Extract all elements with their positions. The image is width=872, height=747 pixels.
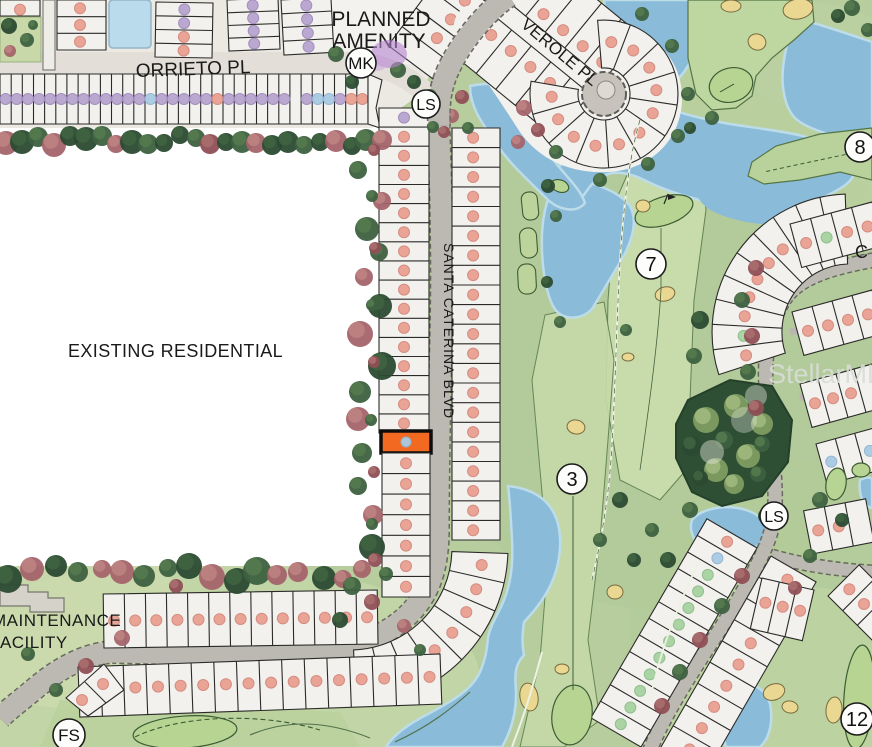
svg-text:SANTA CATERINA BLVD: SANTA CATERINA BLVD bbox=[441, 243, 457, 419]
svg-text:StellarMLS: StellarMLS bbox=[768, 359, 872, 389]
svg-text:LS: LS bbox=[416, 97, 436, 114]
svg-text:7: 7 bbox=[645, 254, 656, 276]
svg-text:MAINTENANCE: MAINTENANCE bbox=[0, 611, 121, 630]
svg-text:C: C bbox=[855, 242, 868, 262]
svg-text:ORRIETO PL: ORRIETO PL bbox=[135, 57, 250, 82]
svg-text:12: 12 bbox=[846, 709, 868, 731]
svg-text:MK: MK bbox=[348, 54, 374, 73]
svg-text:EXISTING RESIDENTIAL: EXISTING RESIDENTIAL bbox=[68, 341, 283, 361]
svg-text:PLANNED: PLANNED bbox=[331, 8, 430, 31]
svg-text:FACILITY: FACILITY bbox=[0, 633, 68, 652]
svg-text:8: 8 bbox=[854, 137, 865, 159]
svg-text:3: 3 bbox=[566, 469, 577, 491]
svg-text:LS: LS bbox=[764, 509, 784, 526]
svg-text:FS: FS bbox=[58, 726, 80, 745]
